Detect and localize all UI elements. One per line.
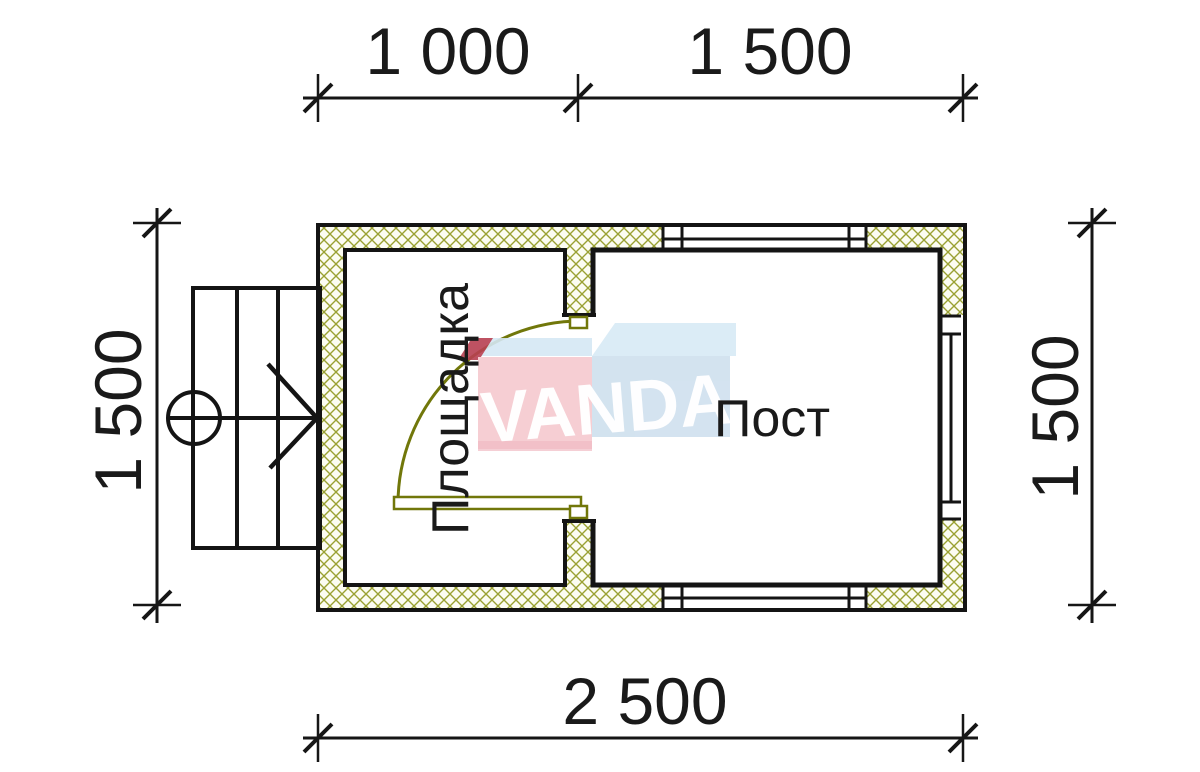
dimension-bottom: 2 500 — [562, 664, 727, 738]
plan-svg: VANDA 1 000 1 500 2 500 1 500 1 500 Площ… — [0, 0, 1200, 772]
logo-blue-top-face — [592, 323, 736, 356]
dimension-top-left: 1 000 — [365, 14, 530, 88]
stairs-symbol — [168, 288, 320, 548]
door-jamb-top — [570, 317, 587, 328]
room-label-left: Площадка — [422, 283, 480, 535]
dimension-left: 1 500 — [81, 328, 155, 493]
dimension-top-right: 1 500 — [687, 14, 852, 88]
door-jamb-bottom — [570, 506, 587, 518]
floor-plan-drawing: VANDA 1 000 1 500 2 500 1 500 1 500 Площ… — [0, 0, 1200, 772]
room-label-right: Пост — [714, 390, 830, 448]
dimension-right: 1 500 — [1018, 334, 1092, 499]
